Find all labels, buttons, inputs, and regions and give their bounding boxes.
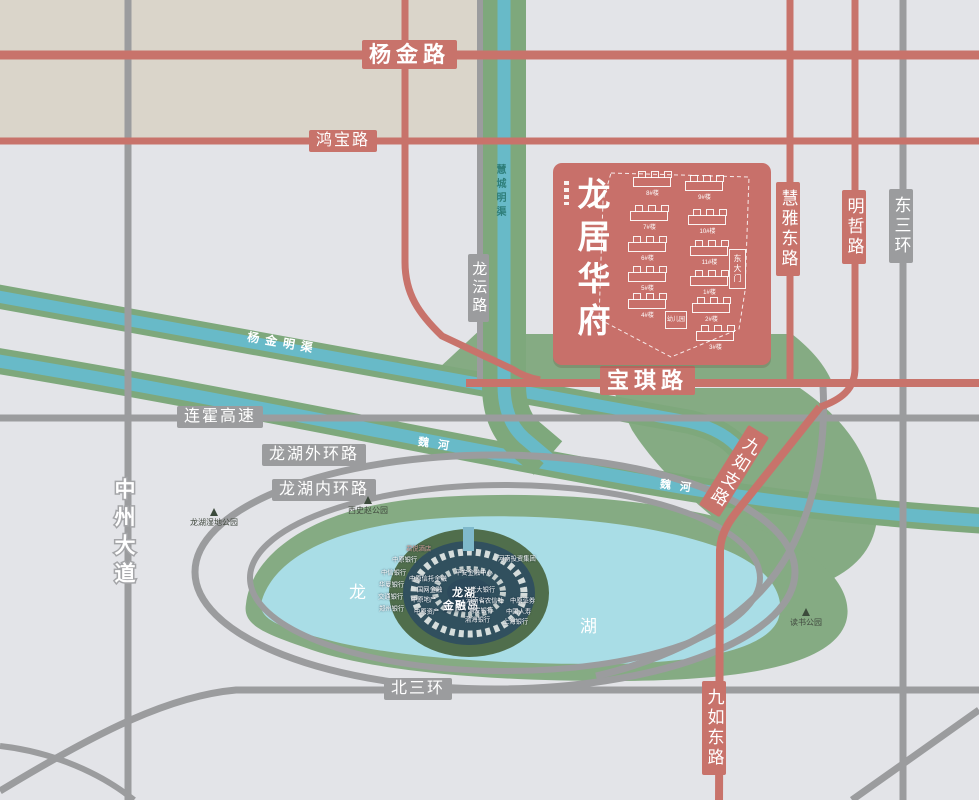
east-gate-label: 东大门: [729, 249, 746, 289]
road-southeast-diagonal: [852, 710, 979, 800]
road-label-baoqi: 宝琪路: [600, 366, 695, 395]
road-label-huiya: 慧雅东路: [776, 182, 800, 276]
park-dushu: 读书公园: [790, 608, 822, 628]
island-label: 浦发银行: [468, 606, 493, 615]
park-wetland-label: 龙湖湿地公园: [190, 518, 238, 527]
island-label: 河南省农信社: [466, 596, 504, 605]
building: 7#楼: [630, 205, 669, 231]
building: 10#楼: [688, 209, 727, 235]
island-label: 国网金融: [417, 585, 442, 594]
building: 5#楼: [628, 266, 667, 292]
kindergarten: 幼儿园: [665, 311, 687, 329]
building: 1#楼: [690, 270, 729, 296]
island-label: 中原资产: [414, 607, 439, 616]
park-xishizhao-label: 西史赵公园: [348, 506, 388, 515]
island-label: 河南投资集团: [498, 554, 536, 563]
logo-seal: [564, 181, 569, 205]
island-label: 中信银行: [381, 568, 406, 577]
road-label-zhongzhou: 中州大道: [108, 478, 138, 590]
road-label-lianhuo: 连霍高速: [177, 406, 263, 428]
building: 3#楼: [696, 325, 735, 351]
lake-label-hu: 湖: [580, 612, 599, 637]
building: 9#楼: [685, 175, 724, 201]
building: 6#楼: [628, 236, 667, 262]
tree-icon: [210, 508, 218, 516]
island-label: 华夏银行: [379, 580, 404, 589]
tree-icon: [802, 608, 810, 616]
island-label: 中原证券: [510, 596, 535, 605]
road-label-hongbao: 鸿宝路: [309, 130, 377, 152]
island-label: 中原信托金融: [409, 574, 447, 583]
road-label-mingzhe: 明哲路: [842, 190, 866, 264]
road-label-yangjin: 杨金路: [362, 40, 457, 69]
road-label-longyun: 龙沄路: [468, 254, 489, 322]
district-beige: [0, 0, 524, 144]
island-label: 郑州银行: [379, 604, 404, 613]
island-label: 中原地产: [411, 595, 436, 604]
road-label-outer-ring: 龙湖外环路: [262, 444, 366, 466]
park-wetland: 龙湖湿地公园: [190, 508, 238, 528]
road-label-jiuru-east: 九如东路: [702, 681, 726, 775]
road-label-east3: 东三环: [889, 189, 913, 263]
island-label: 光大银行: [470, 585, 495, 594]
island-label: 中原银行: [392, 555, 417, 564]
island-label: 平安金融中心: [455, 568, 493, 577]
lake-label-long: 龙: [349, 578, 368, 603]
park-xishizhao: 西史赵公园: [348, 496, 388, 516]
island-label: 交通银行: [378, 592, 403, 601]
building: 8#楼: [633, 171, 672, 197]
tree-icon: [364, 496, 372, 504]
building: 11#楼: [690, 240, 729, 266]
location-map: 杨金路 鸿宝路 龙沄路 宝琪路 连霍高速 龙湖外环路 龙湖内环路 北三环 慧雅东…: [0, 0, 979, 800]
road-north-third-ring: [0, 690, 979, 791]
building: 2#楼: [692, 297, 731, 323]
water-label-huicheng: 慧城明渠: [492, 164, 507, 220]
island-label: 君悦酒店: [406, 544, 431, 553]
site-longju-huafu: 龙居华府 8#楼 9#楼 7#楼 10#楼 6#楼 11#楼 5#楼 1#楼 4…: [553, 163, 771, 365]
island-label: 中国人寿: [506, 607, 531, 616]
site-logo: 龙居华府: [575, 177, 608, 345]
island-label: 上海银行: [503, 617, 528, 626]
road-label-north3: 北三环: [384, 678, 452, 700]
island-label: 渤海银行: [465, 615, 490, 624]
building: 4#楼: [628, 293, 667, 319]
map-geometry: [0, 0, 979, 800]
park-dushu-label: 读书公园: [790, 618, 822, 627]
